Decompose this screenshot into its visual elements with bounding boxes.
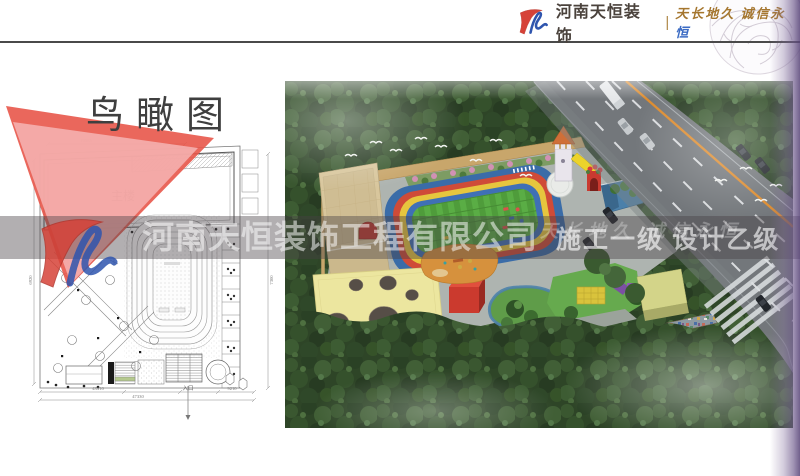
dim-bottom-total: 47330 <box>132 394 144 399</box>
dim-bottom-left: 43310 <box>92 386 104 391</box>
page-title: 鸟瞰图 <box>86 84 236 139</box>
plan-label-entrance: 入口 <box>182 385 193 392</box>
brand-separator: | <box>665 14 669 31</box>
dim-bottom-right: 9210 <box>227 386 237 391</box>
brand-tagline: 天长地久 诚信永恒 <box>675 3 800 41</box>
dim-right: 7300 <box>269 275 274 285</box>
header-brand: 河南天恒装饰 | 天长地久 诚信永恒 <box>518 6 800 38</box>
east-small-building <box>637 269 689 321</box>
company-logo-icon <box>518 7 552 37</box>
logo-watermark-icon <box>36 213 128 295</box>
watermark-company: 河南天恒装饰工程有限公司 <box>142 216 538 259</box>
header-divider <box>0 41 800 43</box>
brand-name: 河南天恒装饰 <box>556 0 658 46</box>
watermark-grades: 施工一级 设计乙级 <box>556 220 780 256</box>
